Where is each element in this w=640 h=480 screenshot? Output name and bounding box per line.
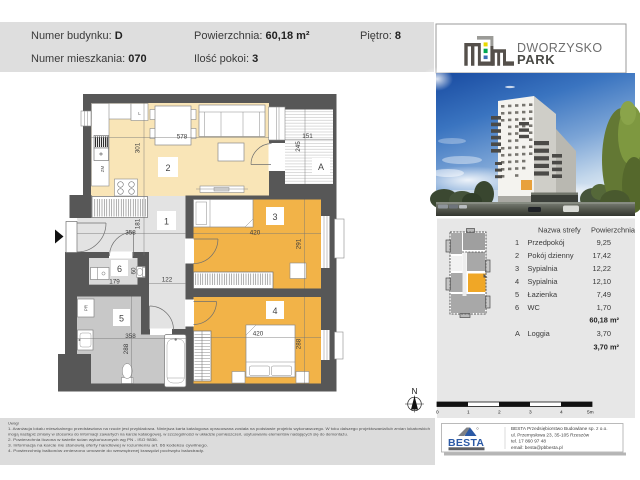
- svg-text:6: 6: [515, 303, 519, 312]
- svg-text:ZM: ZM: [100, 166, 105, 173]
- svg-text:1. Aranżacja lokalu mieszkalne: 1. Aranżacja lokalu mieszkalnego przedst…: [8, 427, 430, 431]
- svg-text:4: 4: [272, 306, 277, 316]
- svg-text:12,22: 12,22: [593, 264, 612, 273]
- svg-text:Powierzchnia: Powierzchnia: [591, 226, 636, 235]
- svg-text:Uwagi: Uwagi: [8, 422, 19, 426]
- svg-text:N: N: [412, 387, 418, 396]
- svg-text:Loggia: Loggia: [528, 329, 551, 338]
- svg-text:mogą nastąpić zmiany w stosunk: mogą nastąpić zmiany w stosunku do infor…: [8, 433, 348, 437]
- svg-text:358: 358: [125, 333, 136, 340]
- svg-text:Sypialnia: Sypialnia: [528, 277, 559, 286]
- svg-text:291: 291: [296, 238, 303, 249]
- svg-text:PARK: PARK: [517, 52, 555, 67]
- svg-text:4: 4: [560, 410, 563, 416]
- svg-text:358: 358: [125, 229, 136, 236]
- svg-text:4: 4: [515, 277, 519, 286]
- svg-text:2: 2: [165, 163, 170, 173]
- svg-text:A: A: [515, 329, 520, 338]
- svg-text:3,70: 3,70: [597, 329, 611, 338]
- svg-text:5: 5: [119, 314, 124, 324]
- svg-text:Sypialnia: Sypialnia: [528, 264, 559, 273]
- svg-text:4. Powierzchnię balkonów zmier: 4. Powierzchnię balkonów zmierzono umown…: [8, 449, 204, 453]
- svg-text:BESTA Przedsiębiorstwo Budowla: BESTA Przedsiębiorstwo Budowlane sp. z o…: [511, 426, 608, 431]
- svg-text:Przedpokój: Przedpokój: [528, 238, 565, 247]
- svg-text:7,49: 7,49: [597, 290, 611, 299]
- svg-text:1,70: 1,70: [597, 303, 611, 312]
- svg-text:tel. 17 860 97 48: tel. 17 860 97 48: [511, 439, 546, 444]
- svg-text:288: 288: [296, 338, 303, 349]
- svg-text:2: 2: [515, 251, 519, 260]
- svg-text:122: 122: [162, 277, 173, 284]
- svg-text:420: 420: [253, 331, 264, 338]
- svg-text:3: 3: [515, 264, 519, 273]
- svg-text:1: 1: [164, 217, 169, 227]
- svg-text:Piętro: 8: Piętro: 8: [360, 30, 401, 42]
- svg-text:2: 2: [498, 410, 501, 416]
- svg-text:BESTA: BESTA: [448, 437, 484, 449]
- svg-text:6: 6: [117, 264, 122, 274]
- svg-text:Powierzchnia: 60,18 m²: Powierzchnia: 60,18 m²: [194, 30, 310, 42]
- svg-text:Ilość pokoi: 3: Ilość pokoi: 3: [194, 53, 258, 65]
- svg-text:5m: 5m: [587, 410, 594, 416]
- svg-text:288: 288: [123, 343, 130, 354]
- svg-text:151: 151: [302, 133, 313, 140]
- svg-text:179: 179: [109, 278, 120, 285]
- svg-text:Numer mieszkania: 070: Numer mieszkania: 070: [31, 53, 147, 65]
- svg-text:301: 301: [135, 142, 142, 153]
- svg-text:Numer budynku: D: Numer budynku: D: [31, 30, 123, 42]
- svg-text:60,18 m²: 60,18 m²: [589, 316, 619, 325]
- svg-text:1: 1: [515, 238, 519, 247]
- svg-text:email: besta@pbbesta.pl: email: besta@pbbesta.pl: [511, 445, 563, 450]
- svg-text:181: 181: [135, 218, 142, 229]
- svg-text:17,42: 17,42: [593, 251, 612, 260]
- svg-text:3,70 m²: 3,70 m²: [594, 343, 620, 352]
- svg-text:Nazwa strefy: Nazwa strefy: [538, 226, 581, 235]
- svg-text:420: 420: [250, 230, 261, 237]
- svg-text:3: 3: [272, 212, 277, 222]
- svg-text:245: 245: [295, 141, 302, 152]
- svg-text:2. Powierzchnia liczona w świe: 2. Powierzchnia liczona w świetle ścian …: [8, 438, 158, 442]
- svg-text:60: 60: [131, 267, 138, 275]
- svg-text:9,25: 9,25: [597, 238, 611, 247]
- svg-text:WC: WC: [528, 303, 541, 312]
- svg-text:A: A: [318, 162, 324, 172]
- svg-text:3. Informacja na karcie nie st: 3. Informacja na karcie nie stanowią ofe…: [8, 444, 208, 448]
- svg-text:3: 3: [529, 410, 532, 416]
- svg-text:5: 5: [515, 290, 519, 299]
- svg-text:PR: PR: [84, 304, 89, 311]
- svg-text:Łazienka: Łazienka: [528, 290, 558, 299]
- svg-text:0: 0: [436, 410, 439, 416]
- svg-text:Pokój dzienny: Pokój dzienny: [528, 251, 574, 260]
- svg-text:1: 1: [467, 410, 470, 416]
- svg-text:12,10: 12,10: [593, 277, 612, 286]
- svg-text:578: 578: [177, 134, 188, 141]
- svg-text:ul. Przemysłowa 23, 35-105 Rze: ul. Przemysłowa 23, 35-105 Rzeszów: [511, 432, 590, 437]
